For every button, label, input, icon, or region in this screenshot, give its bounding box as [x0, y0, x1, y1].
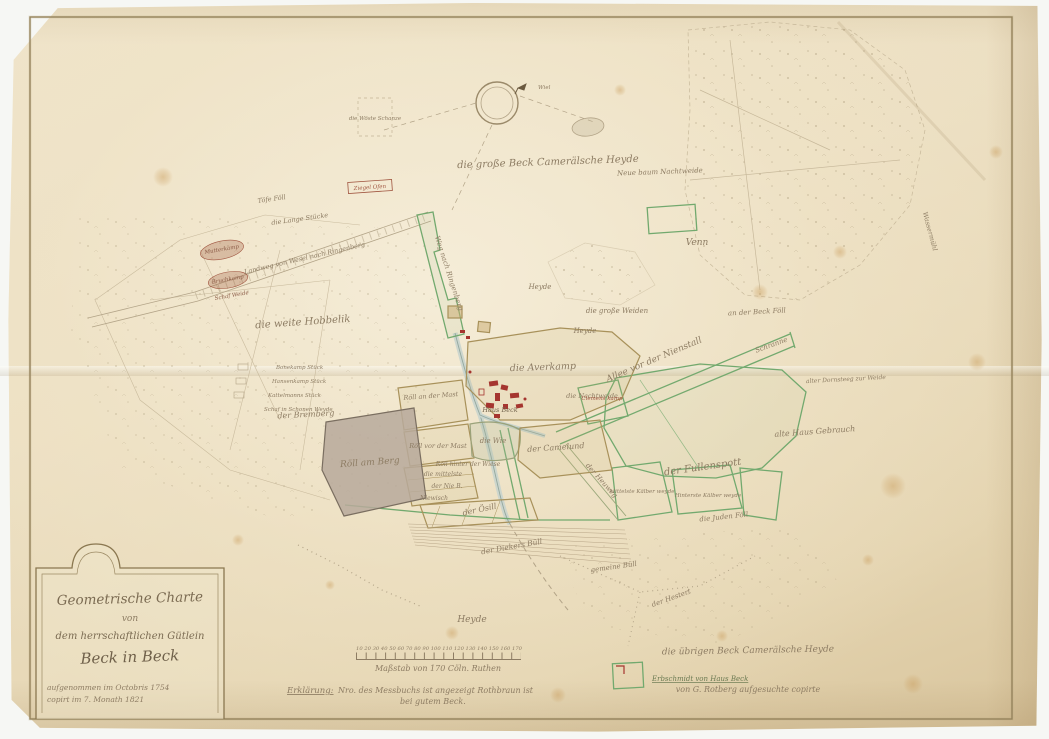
- erbschmidt-red-mark: [616, 666, 624, 674]
- map-label-die-wie: die Wie: [480, 437, 507, 445]
- map-label-schranne: Schranne: [754, 336, 789, 355]
- survey-flag-mark: [515, 84, 526, 94]
- stain: [903, 674, 923, 694]
- stain: [153, 167, 173, 187]
- map-label-clemenskamp: Clemens kamp: [581, 396, 623, 402]
- stain: [550, 687, 566, 703]
- map-label-kaelber-2: Hinterste Kälber weyde: [674, 493, 742, 499]
- building-dot: [524, 398, 527, 401]
- map-label-heyde-a: Heyde: [573, 327, 597, 335]
- map-label-heyde-b: Heyde: [528, 283, 552, 291]
- building-dot: [469, 371, 472, 374]
- cartouche-copy-note: copirt im 7. Monath 1821: [47, 695, 144, 704]
- map-label-schonen: Schaf in Schonen Weyde: [264, 407, 333, 413]
- stain: [989, 145, 1003, 159]
- map-label-niewisch: Niewisch: [419, 495, 448, 502]
- stain: [833, 245, 847, 259]
- stain: [445, 626, 459, 640]
- map-label-averkamp: die Averkamp: [510, 361, 577, 374]
- legend-line-2: bei gutem Beck.: [400, 697, 466, 706]
- cartouche-connector: von: [122, 614, 139, 624]
- building: [510, 393, 519, 399]
- small-plot-b: [478, 321, 491, 332]
- note-rotberg: von G. Rotberg aufgesuchte copirte: [676, 685, 821, 694]
- scale-bar: 10 20 30 40 50 60 70 80 90 100 110 120 1…: [356, 647, 522, 673]
- allee-end-cap: [790, 332, 795, 348]
- scale-caption: Maßstab von 170 Cöln. Ruthen: [374, 664, 501, 673]
- map-label-grosse-weiden: die große Weiden: [586, 307, 649, 315]
- map-label-venn: Venn: [686, 238, 709, 248]
- oesill-hatch-a: [432, 506, 440, 527]
- title-cartouche: Geometrische Charte von dem herrschaftli…: [36, 544, 224, 719]
- pond-oval: [571, 116, 605, 138]
- map-label-heyde-top: die große Beck Camerälsche Heyde: [457, 154, 639, 171]
- survey-circle-outer: [476, 82, 518, 124]
- building: [460, 330, 465, 333]
- map-label-roell-mast-2: Röll vor der Mast: [408, 442, 467, 450]
- map-label-juden-foell: die Juden Föll: [699, 510, 749, 523]
- woods-small-blob: [548, 243, 655, 305]
- note-erbschmidt: Erbschmidt von Haus Beck: [651, 675, 748, 683]
- stain: [880, 473, 906, 499]
- cartouche-estate-name: Beck in Beck: [79, 646, 179, 667]
- dotted-trail-southwest: [298, 545, 420, 606]
- survey-circle-group: [358, 82, 605, 210]
- map-label-roell-wiese: Röll hinter der Wiese: [435, 461, 501, 468]
- building: [494, 414, 500, 418]
- stain: [716, 630, 728, 642]
- legend-line-1: Nro. des Messbuchs ist angezeigt Rothbra…: [337, 686, 534, 695]
- stain: [968, 353, 986, 371]
- map-label-wiel: Wiel: [538, 85, 551, 91]
- map-label-toefe-foell: Töfe Föll: [257, 193, 286, 205]
- building: [495, 393, 500, 401]
- stain: [614, 84, 626, 96]
- map-drawing: Geometrische Charte von dem herrschaftli…: [0, 0, 1049, 739]
- stain: [862, 554, 874, 566]
- map-label-wassermuehl: Wassermühl: [921, 211, 939, 252]
- map-label-hansenkamp: Hansenkamp Stück: [271, 379, 327, 385]
- map-label-nie-b: der Nie B.: [431, 483, 462, 490]
- map-label-heyde-bottom: Heyde: [456, 615, 486, 625]
- survey-circle-inner: [481, 87, 513, 119]
- southeast-speckles: [555, 525, 840, 645]
- scanned-map-page: Geometrische Charte von dem herrschaftli…: [0, 0, 1049, 739]
- map-label-kaelber-1: Mittelste Kälber weyde: [608, 489, 675, 495]
- map-label-mittelste: die mittelste: [424, 471, 463, 478]
- cartouche-subtitle: dem herrschaftlichen Gütlein: [56, 631, 205, 642]
- map-label-kattelmann: Kattelmanns Stück: [267, 393, 322, 399]
- cartouche-survey-note: aufgenommen im Octobris 1754: [47, 683, 170, 692]
- map-label-dornsteeg: alter Dornsteeg zur Weide: [806, 374, 887, 385]
- stain: [752, 284, 768, 300]
- building: [466, 336, 470, 339]
- note-uebrige-heyde: die übrigen Beck Camerälsche Heyde: [662, 644, 834, 657]
- legend-keyword: Erklärung:: [286, 686, 334, 696]
- map-label-bonekamp: Bonekamp Stück: [275, 365, 324, 371]
- map-label-oesill: der Ösill: [462, 501, 498, 517]
- scale-tick-numbers: 10 20 30 40 50 60 70 80 90 100 110 120 1…: [356, 647, 522, 652]
- map-label-beck-foell: an der Beck Föll: [728, 306, 786, 317]
- map-label-haus-beck: Haus Beck: [481, 406, 517, 414]
- stain: [325, 580, 335, 590]
- stain: [232, 534, 244, 546]
- sight-line-east: [520, 96, 594, 122]
- map-label-woeste: die Wöste Schanze: [349, 116, 402, 122]
